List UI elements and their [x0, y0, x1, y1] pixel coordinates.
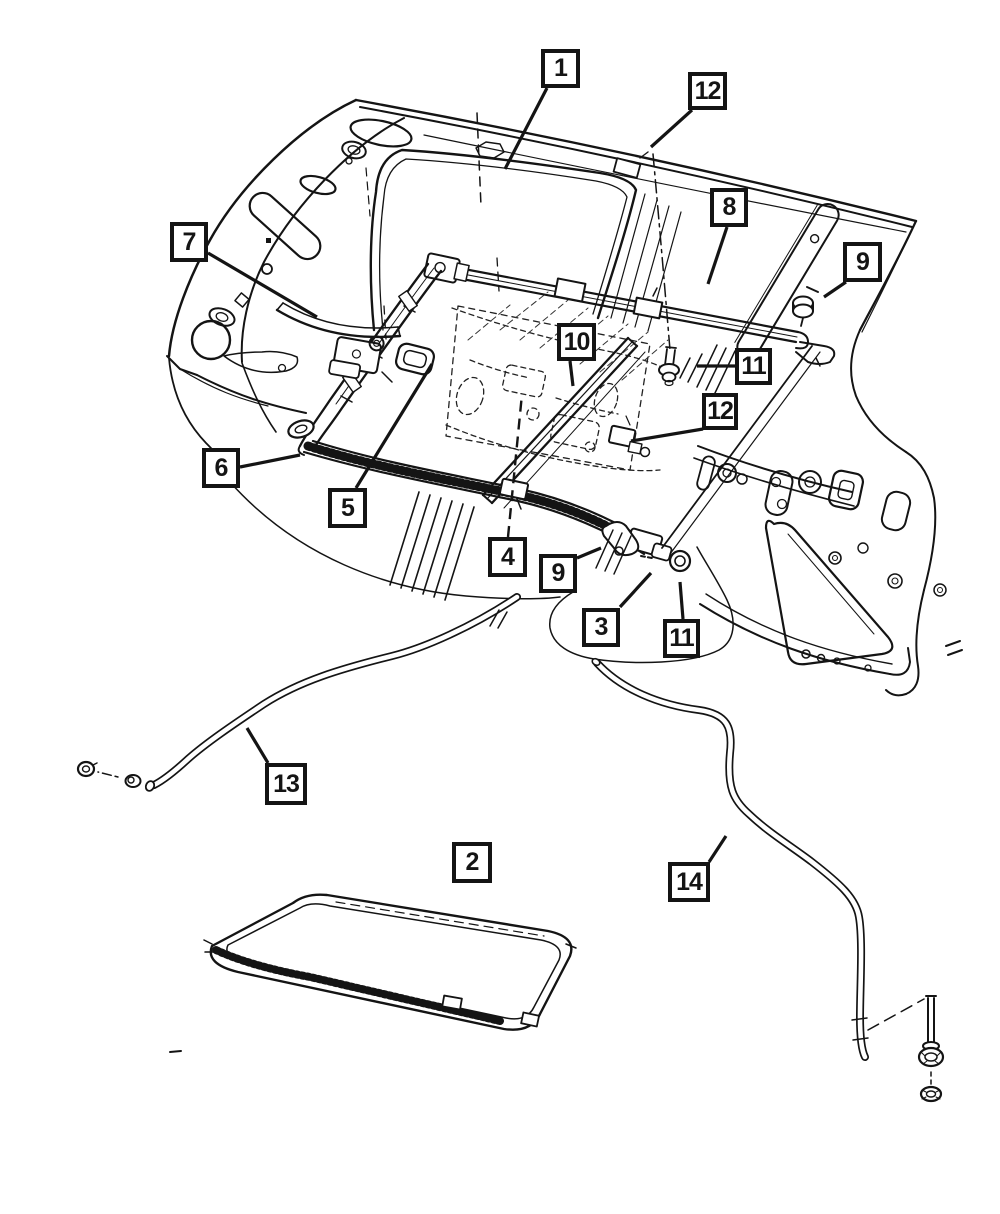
callout-2-15: 2	[452, 842, 492, 883]
callout-14-16: 14	[668, 862, 710, 902]
callout-7-4: 7	[170, 222, 208, 262]
callout-10-5: 10	[557, 323, 596, 361]
callout-9-11: 9	[539, 554, 577, 593]
callout-1-0: 1	[541, 49, 580, 88]
callout-11-6: 11	[735, 348, 772, 385]
callout-9-3: 9	[843, 242, 882, 282]
callout-12-1: 12	[688, 72, 727, 110]
callout-13-14: 13	[265, 763, 307, 805]
callout-4-10: 4	[488, 537, 527, 577]
callout-8-2: 8	[710, 188, 748, 227]
callout-3-12: 3	[582, 608, 620, 647]
callout-layer: 112897101112654931113214	[0, 0, 1000, 1214]
parts-diagram: 112897101112654931113214	[0, 0, 1000, 1214]
callout-12-7: 12	[702, 393, 738, 430]
callout-5-9: 5	[328, 488, 367, 528]
callout-6-8: 6	[202, 448, 240, 488]
callout-11-13: 11	[663, 619, 700, 658]
